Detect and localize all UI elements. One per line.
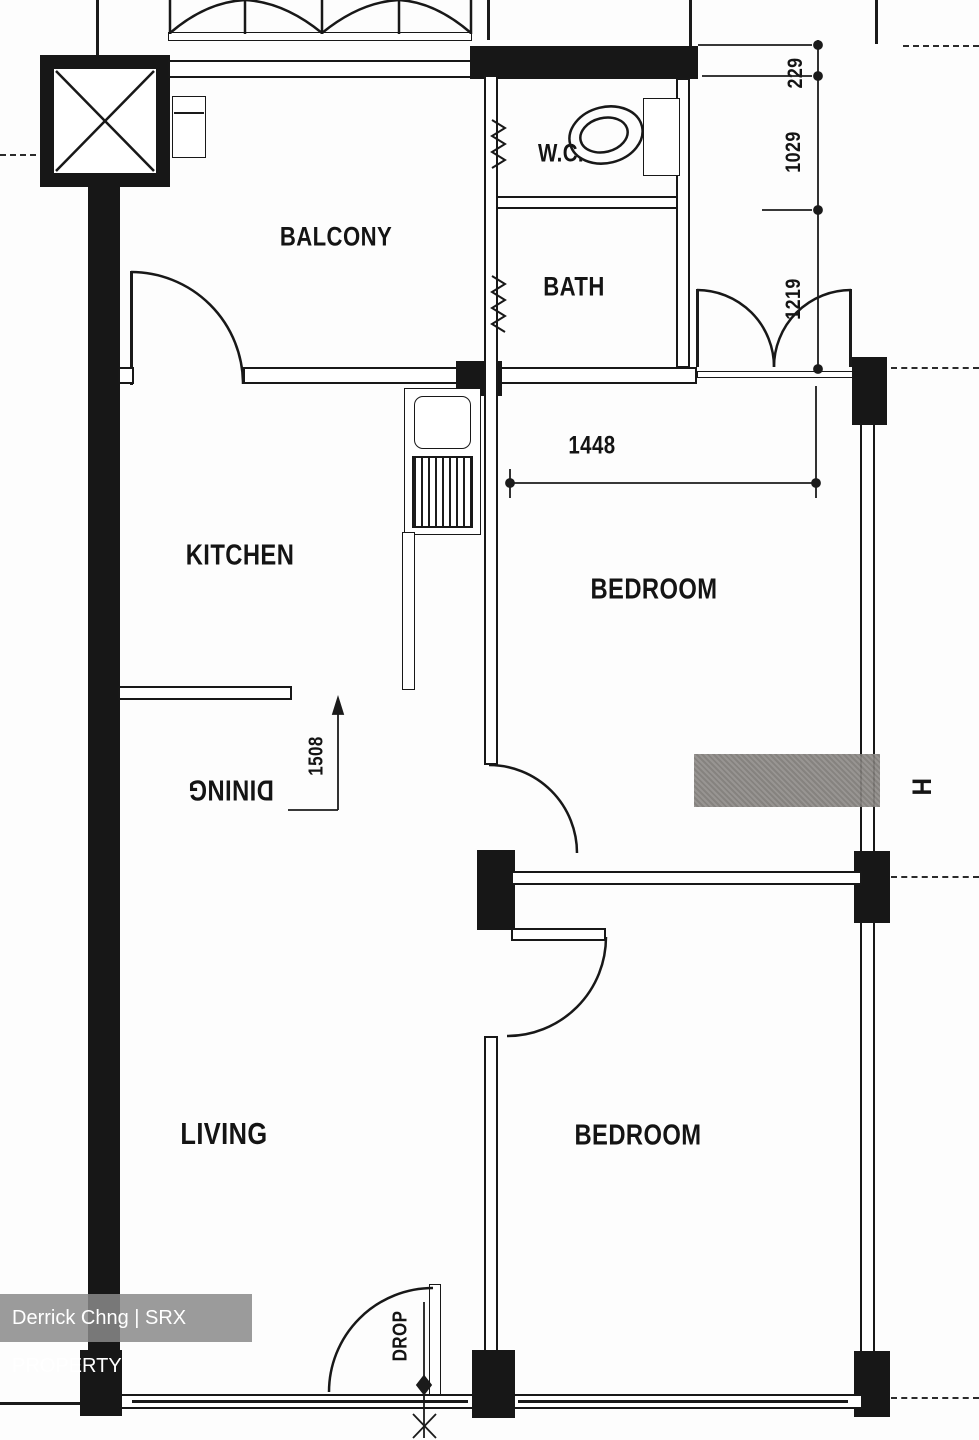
- drop-door-leaf: [429, 1284, 441, 1396]
- bedroom2-door-swing: [507, 937, 606, 1036]
- column: [852, 357, 887, 425]
- column: [472, 1350, 515, 1418]
- room-label-drop: DROP: [390, 1311, 413, 1362]
- balcony-fixture: [172, 96, 206, 158]
- column: [477, 850, 515, 930]
- grid-dash: [891, 876, 979, 878]
- room-label-bath: BATH: [543, 272, 604, 303]
- watermark: Derrick Chng | SRX PROPERTY: [0, 1294, 252, 1342]
- kitchen-counter-wall: [402, 532, 415, 690]
- grid-dash: [891, 367, 979, 369]
- balcony-door-swing: [131, 272, 243, 384]
- bottom-window: [132, 1400, 468, 1403]
- grid-line: [487, 0, 490, 40]
- room-label-balcony: BALCONY: [280, 222, 392, 253]
- right-exterior-wall-lower: [860, 921, 875, 1353]
- wc-bath-divider-wall: [496, 196, 678, 209]
- drop-arrow-feather: [413, 1414, 436, 1438]
- wall-stub: [118, 367, 134, 384]
- room-label-bedroom1: BEDROOM: [590, 574, 717, 607]
- bedroom1-door-swing: [489, 765, 577, 853]
- room-label-wc: W.C.: [538, 140, 584, 169]
- entrance-door-leaf-left: [696, 289, 699, 367]
- dimension-tick: [814, 41, 822, 49]
- floor-plan: BALCONY W.C. BATH KITCHEN BEDROOM DINING…: [0, 0, 979, 1440]
- dimension-label-229: 229: [784, 57, 808, 88]
- beam-marker: H: [906, 778, 937, 796]
- bottom-window: [518, 1400, 848, 1403]
- room-label-kitchen: KITCHEN: [186, 540, 295, 573]
- grid-line: [875, 0, 878, 44]
- dimension-tick: [506, 479, 514, 487]
- column: [854, 851, 890, 923]
- left-exterior-wall: [88, 183, 120, 1415]
- highlighted-wall-segment: [694, 754, 880, 807]
- casement-arc: [322, 0, 399, 33]
- room-label-dining: DINING: [188, 773, 274, 806]
- entrance-door-swing: [697, 290, 774, 367]
- wc-top-wall: [470, 46, 698, 79]
- grid-line: [96, 0, 99, 58]
- grid-dash: [0, 154, 36, 156]
- balcony-front-wall: [168, 60, 480, 78]
- kitchen-sink-bowl: [414, 396, 471, 449]
- dimension-tick: [814, 206, 822, 214]
- casement-arc: [399, 0, 471, 33]
- living-bedroom2-wall: [484, 1036, 498, 1396]
- drop-arrow-feather: [413, 1414, 436, 1438]
- drop-door-swing: [329, 1288, 433, 1392]
- casement-arc: [170, 0, 245, 33]
- dimension-tick: [812, 479, 820, 487]
- balcony-fixture-line: [174, 112, 204, 114]
- room-label-living: LIVING: [180, 1116, 267, 1152]
- dimension-label-1448: 1448: [568, 432, 615, 461]
- entrance-door-leaf-right: [849, 289, 852, 367]
- kitchen-hall-west-wall: [484, 75, 498, 765]
- structural-shaft-box: [40, 55, 170, 187]
- leader-arrow-up: [333, 698, 343, 714]
- toilet-cistern: [643, 98, 680, 176]
- dimension-tick: [814, 72, 822, 80]
- bedroom2-door-leaf: [511, 928, 606, 941]
- grid-line: [689, 0, 692, 46]
- room-label-bedroom2: BEDROOM: [574, 1120, 701, 1153]
- toilet-bowl-inner: [577, 113, 632, 158]
- kitchen-drainer: [412, 456, 473, 528]
- dimension-label-1508: 1508: [306, 736, 329, 776]
- casement-arc: [245, 0, 322, 33]
- dimension-label-1029: 1029: [782, 131, 806, 172]
- balcony-window-sill: [168, 32, 472, 41]
- bedroom-divider-wall: [511, 871, 862, 885]
- dimension-label-1219: 1219: [782, 278, 806, 319]
- grid-dash: [903, 45, 979, 47]
- wall-extension-line: [0, 1402, 88, 1405]
- entrance-threshold: [697, 371, 853, 378]
- grid-dash: [891, 1397, 979, 1399]
- kitchen-dining-wall: [118, 686, 292, 700]
